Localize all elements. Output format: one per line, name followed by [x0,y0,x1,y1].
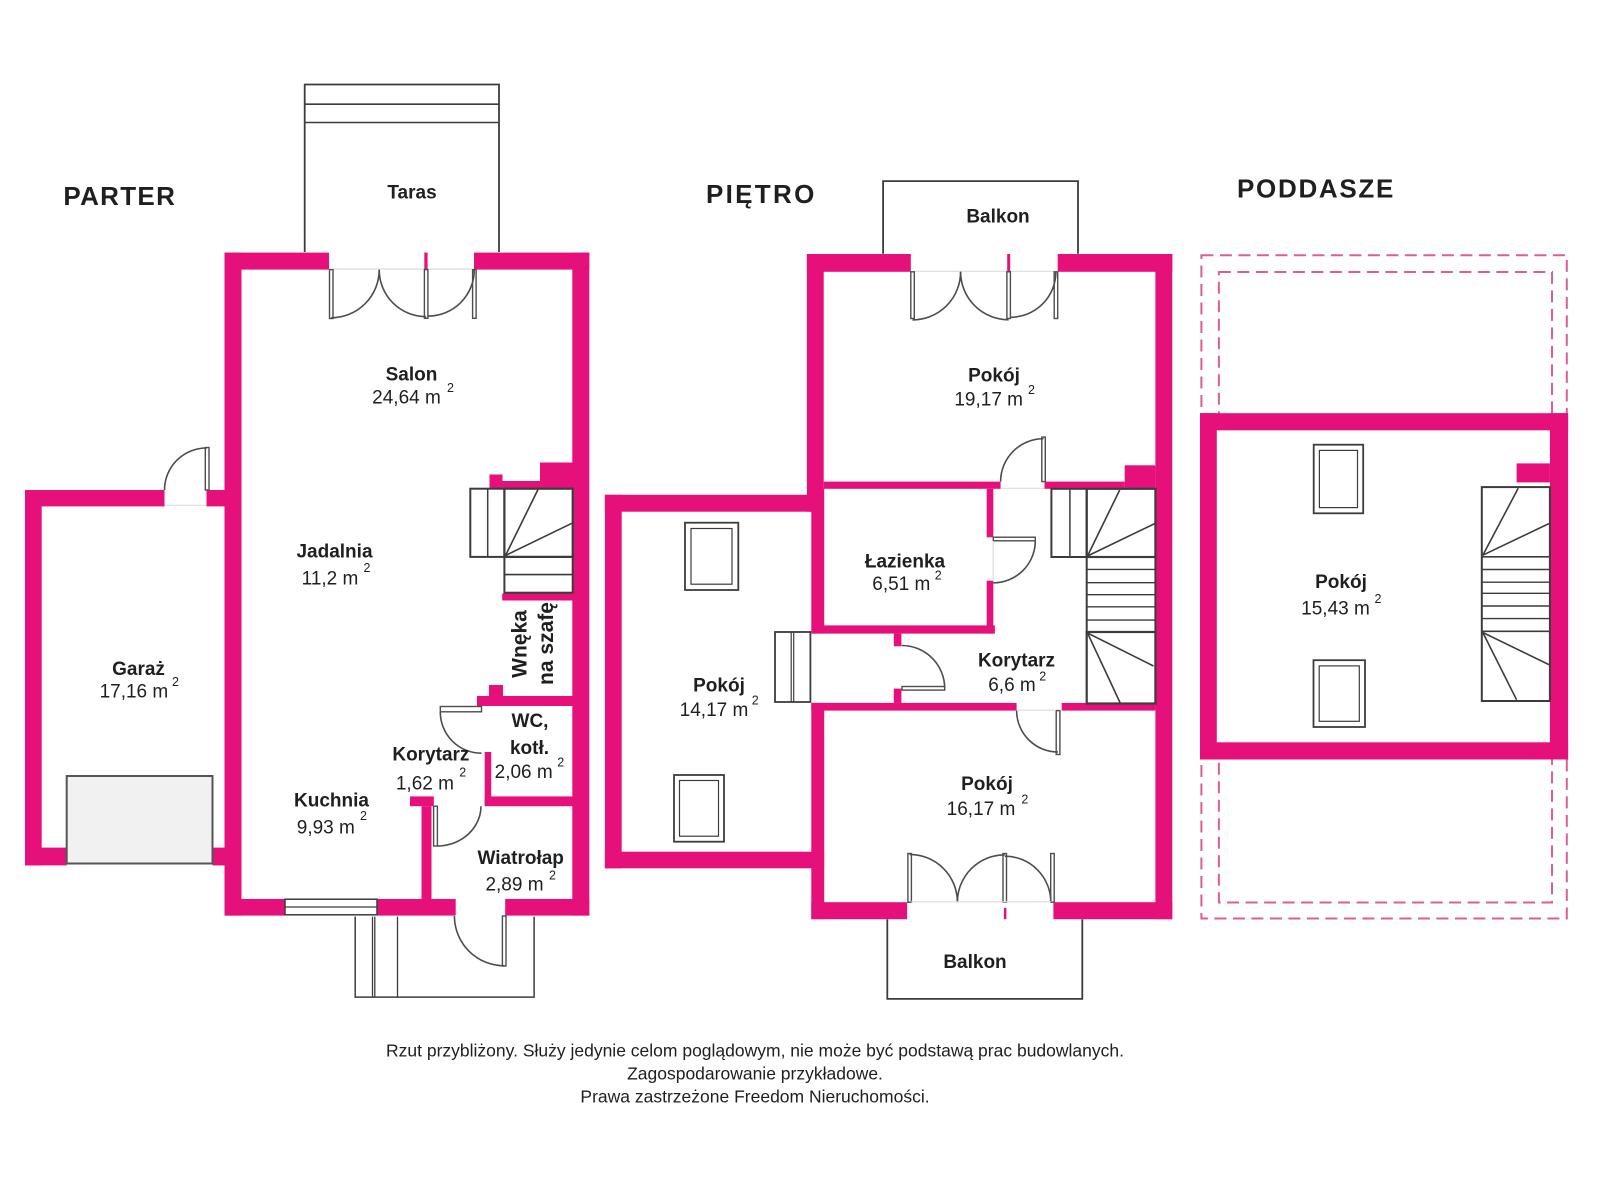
svg-text:2: 2 [557,756,564,770]
svg-text:24,64 m: 24,64 m [372,388,441,409]
svg-text:16,17 m: 16,17 m [947,799,1016,820]
svg-text:PIĘTRO: PIĘTRO [706,179,817,209]
svg-text:1,62 m: 1,62 m [396,774,454,795]
svg-text:na szafę: na szafę [535,602,558,685]
svg-text:Zagospodarowanie przykładowe.: Zagospodarowanie przykładowe. [627,1064,883,1084]
svg-text:Łazienka: Łazienka [865,552,946,573]
svg-text:2: 2 [1021,793,1028,807]
svg-text:2: 2 [1028,383,1035,397]
svg-text:Pokój: Pokój [1315,572,1367,593]
svg-text:Wnęka: Wnęka [509,610,532,678]
svg-text:Wiatrołap: Wiatrołap [478,848,564,869]
svg-text:Rzut przybliżony. Służy jedyni: Rzut przybliżony. Służy jedynie celom po… [386,1041,1124,1061]
svg-text:Jadalnia: Jadalnia [296,542,372,563]
svg-text:2: 2 [447,381,454,395]
svg-text:2: 2 [935,569,942,583]
svg-text:2: 2 [172,675,179,689]
svg-text:2: 2 [459,766,466,780]
svg-text:2: 2 [1375,592,1382,606]
svg-text:17,16 m: 17,16 m [100,682,169,703]
svg-text:WC,: WC, [512,711,549,732]
svg-text:Salon: Salon [386,365,438,386]
svg-text:Korytarz: Korytarz [978,651,1055,672]
svg-text:2: 2 [1039,670,1046,684]
svg-text:15,43 m: 15,43 m [1301,599,1370,620]
svg-text:Garaż: Garaż [112,659,165,680]
svg-text:Prawa zastrzeżone Freedom Nier: Prawa zastrzeżone Freedom Nieruchomości. [580,1087,929,1107]
svg-text:2: 2 [752,694,759,708]
svg-text:9,93 m: 9,93 m [297,818,355,839]
svg-text:2: 2 [360,809,367,823]
svg-text:Balkon: Balkon [966,207,1029,228]
svg-text:Pokój: Pokój [961,774,1013,795]
svg-text:PARTER: PARTER [63,181,176,211]
svg-text:Pokój: Pokój [693,676,745,697]
svg-text:6,51 m: 6,51 m [872,574,930,595]
svg-text:19,17 m: 19,17 m [954,390,1023,411]
svg-text:2,06 m: 2,06 m [495,762,553,783]
svg-text:Korytarz: Korytarz [392,745,469,766]
svg-text:2: 2 [549,869,556,883]
svg-text:2,89 m: 2,89 m [485,875,543,896]
svg-text:14,17 m: 14,17 m [680,700,749,721]
svg-text:PODDASZE: PODDASZE [1237,174,1395,204]
svg-text:kotł.: kotł. [510,738,549,759]
svg-text:11,2 m: 11,2 m [302,569,359,590]
svg-text:Kuchnia: Kuchnia [294,791,369,812]
svg-text:Pokój: Pokój [968,366,1020,387]
svg-text:Balkon: Balkon [943,952,1006,973]
svg-text:2: 2 [364,561,371,575]
svg-text:6,6 m: 6,6 m [988,675,1036,696]
svg-text:Taras: Taras [387,183,436,204]
